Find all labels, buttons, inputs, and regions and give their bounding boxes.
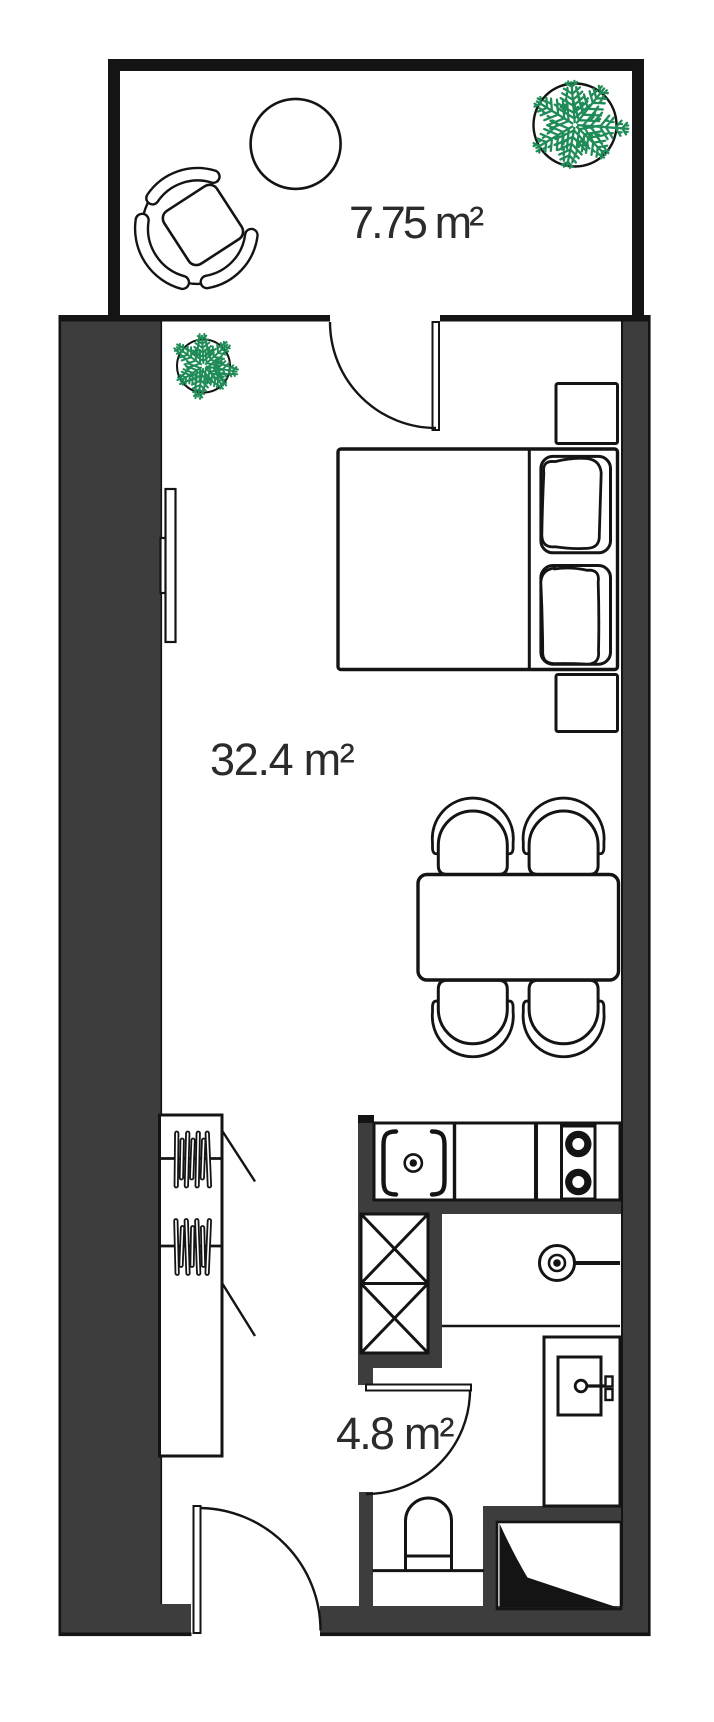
- svg-text:7.75 m²: 7.75 m²: [349, 197, 484, 248]
- svg-text:4.8 m²: 4.8 m²: [336, 1408, 455, 1459]
- svg-text:32.4 m²: 32.4 m²: [210, 734, 355, 785]
